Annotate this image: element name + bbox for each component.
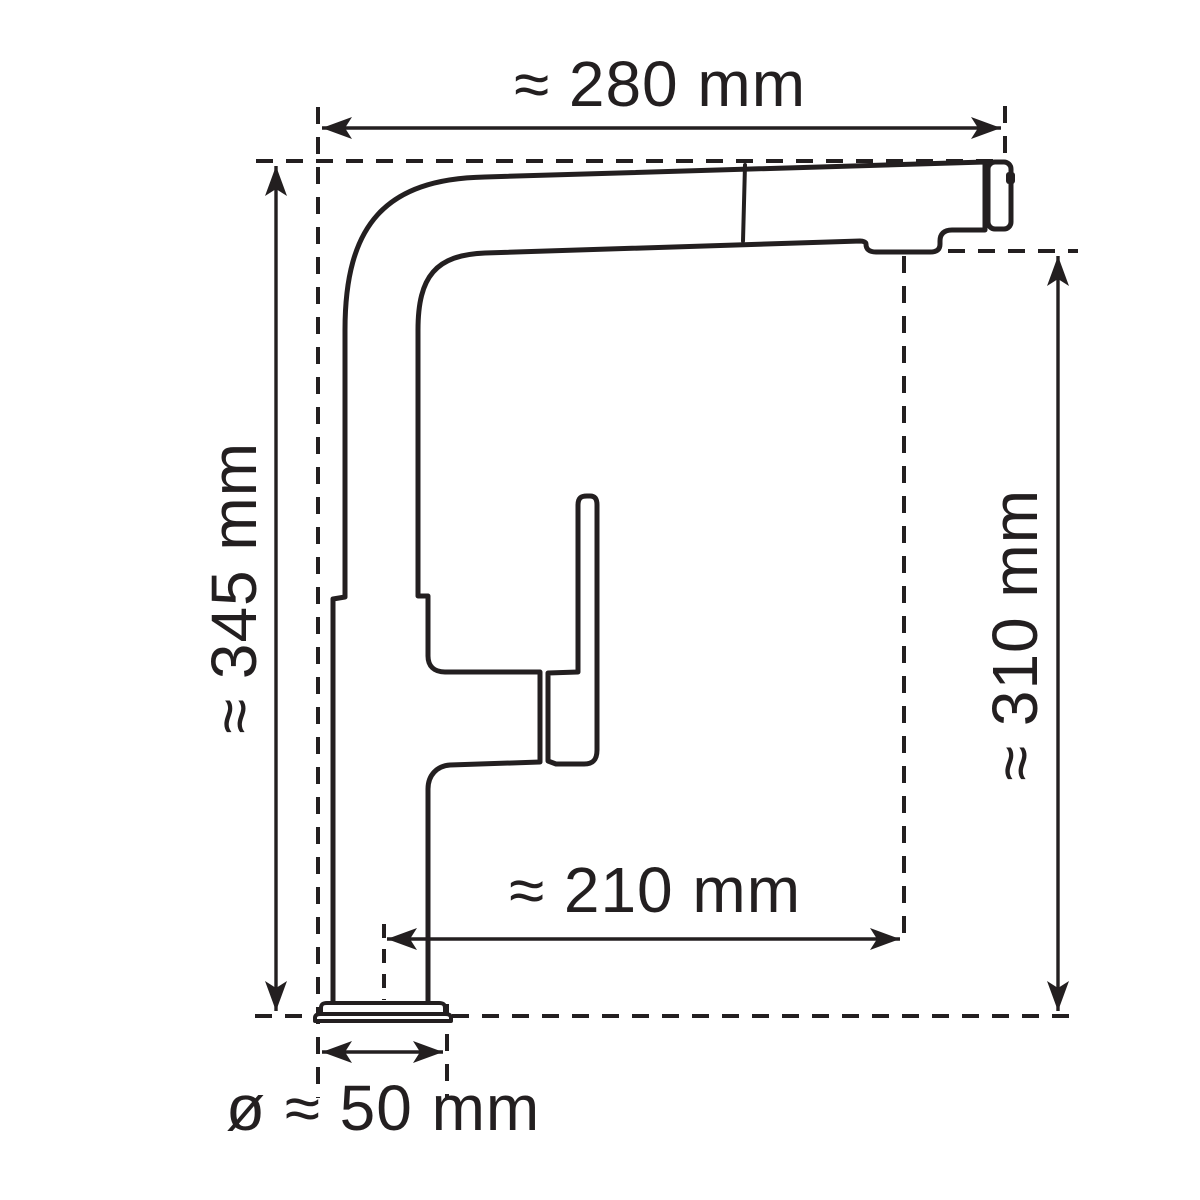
dimension-label-210: ≈ 210 mm <box>509 854 801 926</box>
dimension-overall-width: ≈ 280 mm <box>322 48 1001 128</box>
faucet-dimension-diagram: ≈ 280 mm ≈ 345 mm ≈ 310 mm ≈ 210 mm ø ≈ … <box>0 0 1200 1200</box>
dimension-label-310: ≈ 310 mm <box>979 489 1051 781</box>
dimension-label-280: ≈ 280 mm <box>514 48 806 120</box>
dimension-overall-height: ≈ 345 mm <box>198 166 276 1011</box>
diagram-svg: ≈ 280 mm ≈ 345 mm ≈ 310 mm ≈ 210 mm ø ≈ … <box>0 0 1200 1200</box>
dimension-outlet-height: ≈ 310 mm <box>979 256 1058 1011</box>
spray-head-clip-detail <box>1006 172 1015 184</box>
dimension-base-diameter: ø ≈ 50 mm <box>226 1052 540 1144</box>
spray-head-endcap <box>988 162 1011 229</box>
dimension-label-345: ≈ 345 mm <box>198 442 270 734</box>
base-plate-upper <box>321 1003 445 1014</box>
dimension-spout-reach: ≈ 210 mm <box>387 854 900 939</box>
dimension-label-50: ø ≈ 50 mm <box>226 1072 540 1144</box>
spout-seam-line <box>743 165 745 241</box>
faucet-handle <box>548 496 597 764</box>
